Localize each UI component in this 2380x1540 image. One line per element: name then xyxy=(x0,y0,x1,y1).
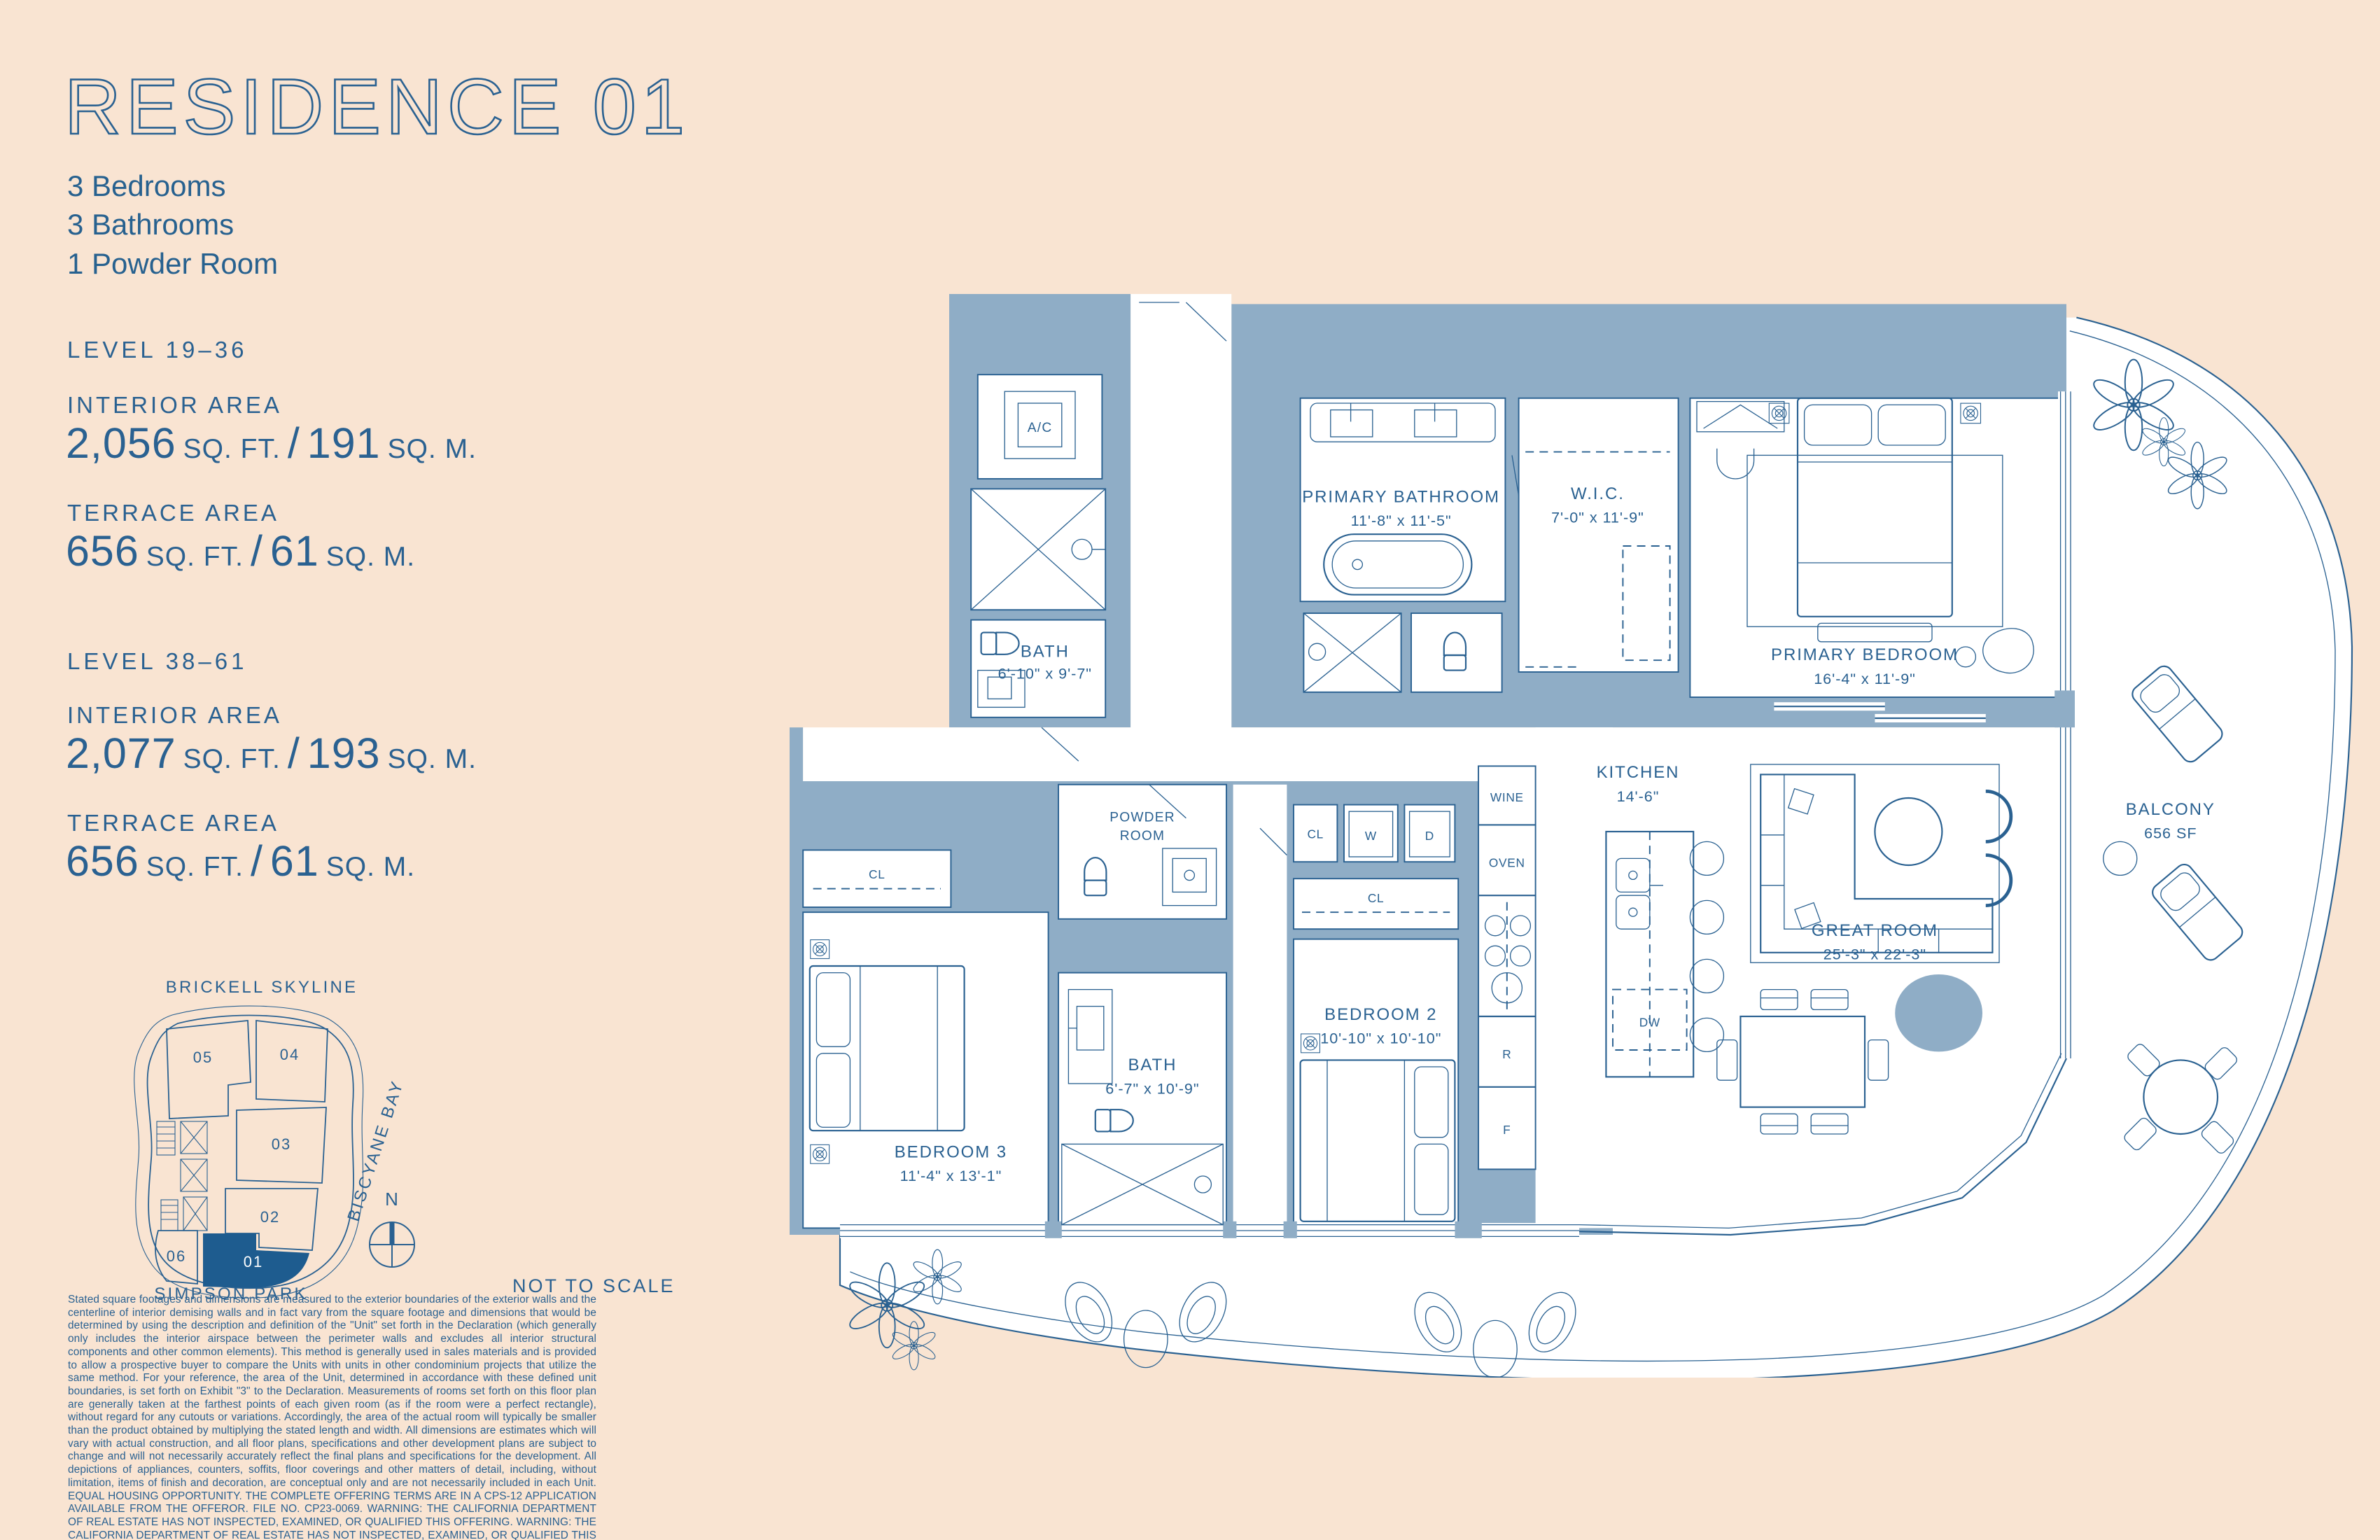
svg-text:ROOM: ROOM xyxy=(1120,829,1165,843)
room-label-bedroom3: BEDROOM 3 xyxy=(895,1143,1007,1162)
primary-wc xyxy=(1411,613,1502,692)
freezer-label: F xyxy=(1503,1123,1511,1137)
level-2-terrace-value: 656SQ. FT./61SQ. M. xyxy=(66,836,422,885)
svg-text:25'-3" x 22'-3": 25'-3" x 22'-3" xyxy=(1823,945,1926,962)
svg-text:6'-7" x 10'-9": 6'-7" x 10'-9" xyxy=(1105,1079,1199,1097)
keyplan-unit-05 xyxy=(167,1021,251,1119)
room-label-powder-1: POWDER xyxy=(1109,811,1175,825)
svg-text:11'-4" x 13'-1": 11'-4" x 13'-1" xyxy=(900,1167,1002,1184)
svg-text:656 SF: 656 SF xyxy=(2144,825,2197,842)
round-ottoman xyxy=(1895,974,1982,1051)
svg-text:CL: CL xyxy=(869,867,885,881)
keyplan-skyline-label: BRICKELL SKYLINE xyxy=(166,978,358,997)
room-label-bath2: BATH xyxy=(1128,1056,1177,1074)
level-1-name: LEVEL 19–36 xyxy=(67,337,247,363)
compass-n-label: N xyxy=(385,1190,399,1210)
feature-bedrooms: 3 Bedrooms xyxy=(67,167,278,205)
svg-text:10'-10" x 10'-10": 10'-10" x 10'-10" xyxy=(1320,1029,1441,1046)
svg-text:16'-4" x 11'-9": 16'-4" x 11'-9" xyxy=(1814,670,1916,687)
level-2-name: LEVEL 38–61 xyxy=(67,648,247,675)
room-label-primary-bedroom: PRIMARY BEDROOM xyxy=(1771,645,1959,664)
room-label-balcony: BALCONY xyxy=(2126,800,2215,819)
compass: N xyxy=(350,1190,434,1284)
appliance-column xyxy=(1478,766,1536,1169)
bath2-room xyxy=(1058,973,1226,1228)
wine-label: WINE xyxy=(1490,790,1524,804)
feature-bathrooms: 3 Bathrooms xyxy=(67,205,278,244)
plant-6 xyxy=(890,1322,937,1370)
level-1-interior-label: INTERIOR AREA xyxy=(67,392,282,419)
level-1-interior-value: 2,056SQ. FT./191SQ. M. xyxy=(66,419,484,468)
svg-text:6'-10" x 9'-7": 6'-10" x 9'-7" xyxy=(998,665,1092,682)
room-label-bath3: BATH xyxy=(1021,642,1070,661)
room-label-primary-bathroom: PRIMARY BATHROOM xyxy=(1302,488,1500,507)
bedroom-hall xyxy=(1233,785,1287,1228)
keyplan-label-04: 04 xyxy=(280,1046,300,1063)
level-1-terrace-value: 656SQ. FT./61SQ. M. xyxy=(66,526,422,575)
svg-text:A/C: A/C xyxy=(1028,421,1053,435)
window-band-south xyxy=(840,1221,1579,1238)
svg-text:W: W xyxy=(1365,829,1377,843)
keyplan-label-03: 03 xyxy=(272,1135,291,1153)
keyplan-core-icons xyxy=(157,1121,207,1231)
floorplan-svg: A/C BATH 6'-10" x 9'-7" PRIMARY BATHROOM… xyxy=(790,294,2369,1378)
oven-label: OVEN xyxy=(1489,855,1525,869)
bedroom2-room xyxy=(1294,939,1458,1228)
room-label-great-room: GREAT ROOM xyxy=(1812,921,1938,940)
keyplan-label-01: 01 xyxy=(244,1253,263,1270)
level-2-interior-label: INTERIOR AREA xyxy=(67,702,282,729)
svg-text:14'-6": 14'-6" xyxy=(1617,787,1660,805)
svg-text:CL: CL xyxy=(1368,891,1385,905)
level-1-terrace-label: TERRACE AREA xyxy=(67,500,279,526)
svg-text:D: D xyxy=(1425,829,1434,843)
keyplan-label-02: 02 xyxy=(260,1208,280,1226)
disclaimer-text: Stated square footages and dimensions ar… xyxy=(68,1294,596,1540)
feature-powder: 1 Powder Room xyxy=(67,244,278,283)
fridge-label: R xyxy=(1502,1047,1511,1061)
feature-list: 3 Bedrooms 3 Bathrooms 1 Powder Room xyxy=(67,167,278,283)
dishwasher-label: DW xyxy=(1639,1015,1660,1029)
svg-text:11'-8" x 11'-5": 11'-8" x 11'-5" xyxy=(1351,512,1452,529)
north-arrow-icon: N xyxy=(350,1190,434,1281)
closet-label-laundry: CL xyxy=(1307,827,1324,841)
svg-text:7'-0" x 11'-9": 7'-0" x 11'-9" xyxy=(1551,508,1644,526)
powder-room xyxy=(1058,785,1226,919)
room-label-kitchen: KITCHEN xyxy=(1597,763,1680,782)
keyplan-label-05: 05 xyxy=(193,1049,213,1066)
room-label-wic: W.I.C. xyxy=(1571,484,1625,503)
room-label-bedroom2: BEDROOM 2 xyxy=(1324,1005,1437,1024)
level-2-interior-value: 2,077SQ. FT./193SQ. M. xyxy=(66,729,484,778)
page-title: RESIDENCE 01 xyxy=(64,62,689,152)
level-2-terrace-label: TERRACE AREA xyxy=(67,810,279,836)
great-room-floor xyxy=(1536,727,2066,1228)
keyplan-label-06: 06 xyxy=(167,1247,186,1265)
entry-gallery xyxy=(1130,294,1231,731)
wic-room xyxy=(1519,398,1679,672)
brochure-page: RESIDENCE 01 3 Bedrooms 3 Bathrooms 1 Po… xyxy=(0,0,2380,1540)
